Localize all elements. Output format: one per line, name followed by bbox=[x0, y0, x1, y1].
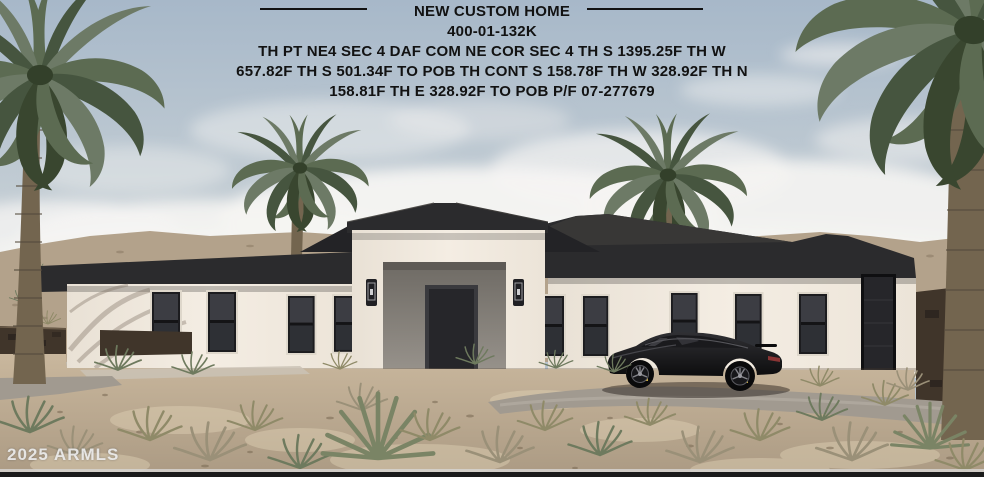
parcel-number: 400-01-132K bbox=[0, 22, 984, 42]
title-rule-left bbox=[260, 8, 367, 10]
window bbox=[581, 294, 610, 358]
window bbox=[286, 294, 316, 355]
wall-sconce-left bbox=[366, 279, 377, 306]
window bbox=[797, 292, 829, 356]
title-rule-right bbox=[587, 8, 703, 10]
legal-description-line-2: 657.82F TH S 501.34F TO POB TH CONT S 15… bbox=[0, 62, 984, 82]
car-rear-wheel bbox=[725, 361, 755, 391]
listing-photo: NEW CUSTOM HOME 400-01-132K TH PT NE4 SE… bbox=[0, 0, 984, 477]
wall-sconce-right bbox=[513, 279, 524, 306]
legal-description-line-3: 158.81F TH E 328.92F TO POB P/F 07-27767… bbox=[0, 82, 984, 102]
bottom-dark-strip bbox=[0, 472, 984, 477]
entry-recess-ceiling bbox=[383, 262, 506, 270]
listing-title: NEW CUSTOM HOME bbox=[0, 2, 984, 22]
armls-watermark: 2025 ARMLS bbox=[7, 445, 119, 465]
car-shadow bbox=[602, 382, 790, 398]
side-entry-door bbox=[861, 274, 896, 373]
entry-door bbox=[429, 289, 474, 372]
overlay-text-block: NEW CUSTOM HOME 400-01-132K TH PT NE4 SE… bbox=[0, 2, 984, 102]
car-spoiler bbox=[755, 344, 777, 347]
rock-wall-left-2 bbox=[100, 330, 192, 356]
window bbox=[206, 290, 238, 354]
car-front-wheel bbox=[626, 360, 654, 388]
tower-eave-shadow bbox=[352, 233, 545, 240]
right-eave-shadow bbox=[548, 278, 916, 284]
legal-description-line-1: TH PT NE4 SEC 4 DAF COM NE COR SEC 4 TH … bbox=[0, 42, 984, 62]
